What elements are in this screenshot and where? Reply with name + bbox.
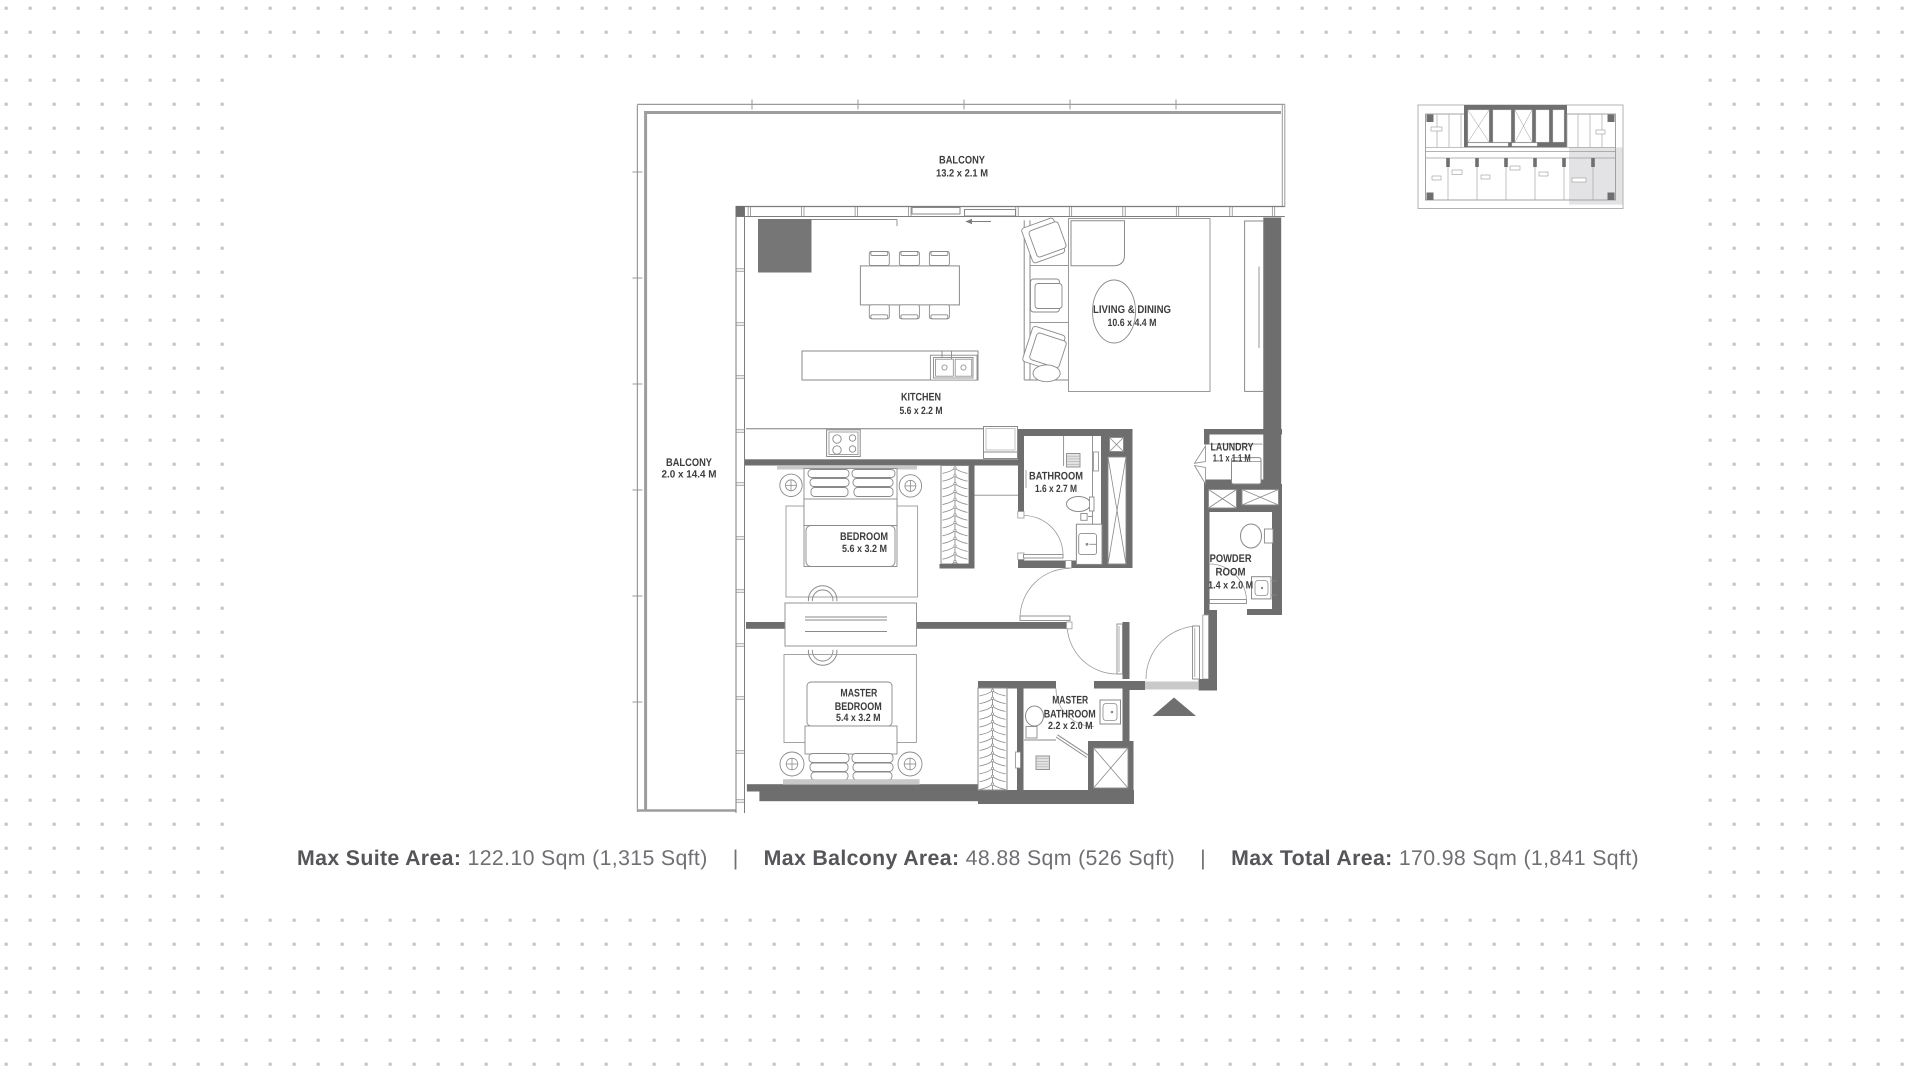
svg-text:BEDROOM: BEDROOM bbox=[840, 531, 888, 543]
svg-text:BALCONY: BALCONY bbox=[666, 457, 713, 469]
svg-text:5.6 x 2.2 M: 5.6 x 2.2 M bbox=[900, 405, 943, 417]
svg-text:1.4 x 2.0 M: 1.4 x 2.0 M bbox=[1208, 580, 1253, 592]
svg-text:POWDER: POWDER bbox=[1210, 553, 1252, 565]
svg-text:MASTER: MASTER bbox=[840, 688, 877, 700]
svg-text:ROOM: ROOM bbox=[1216, 567, 1246, 579]
svg-text:2.2 x 2.0 M: 2.2 x 2.0 M bbox=[1048, 720, 1093, 732]
svg-text:KITCHEN: KITCHEN bbox=[901, 392, 941, 404]
svg-text:10.6 x 4.4 M: 10.6 x 4.4 M bbox=[1108, 317, 1157, 329]
svg-text:MASTER: MASTER bbox=[1052, 695, 1088, 707]
svg-text:BATHROOM: BATHROOM bbox=[1029, 471, 1083, 483]
svg-text:13.2 x 2.1 M: 13.2 x 2.1 M bbox=[936, 168, 988, 180]
svg-text:1.1 x 1.1 M: 1.1 x 1.1 M bbox=[1213, 453, 1251, 465]
svg-text:BATHROOM: BATHROOM bbox=[1044, 709, 1096, 721]
svg-text:Max Suite Area: 122.10 Sqm (1,: Max Suite Area: 122.10 Sqm (1,315 Sqft) … bbox=[297, 846, 1639, 870]
svg-text:2.0 x 14.4 M: 2.0 x 14.4 M bbox=[662, 469, 717, 481]
svg-text:LIVING & DINING: LIVING & DINING bbox=[1093, 304, 1171, 316]
svg-text:BALCONY: BALCONY bbox=[939, 155, 986, 167]
svg-text:5.4 x 3.2 M: 5.4 x 3.2 M bbox=[836, 712, 881, 724]
svg-text:1.6 x 2.7 M: 1.6 x 2.7 M bbox=[1035, 483, 1077, 495]
svg-text:5.6 x 3.2 M: 5.6 x 3.2 M bbox=[842, 543, 887, 555]
